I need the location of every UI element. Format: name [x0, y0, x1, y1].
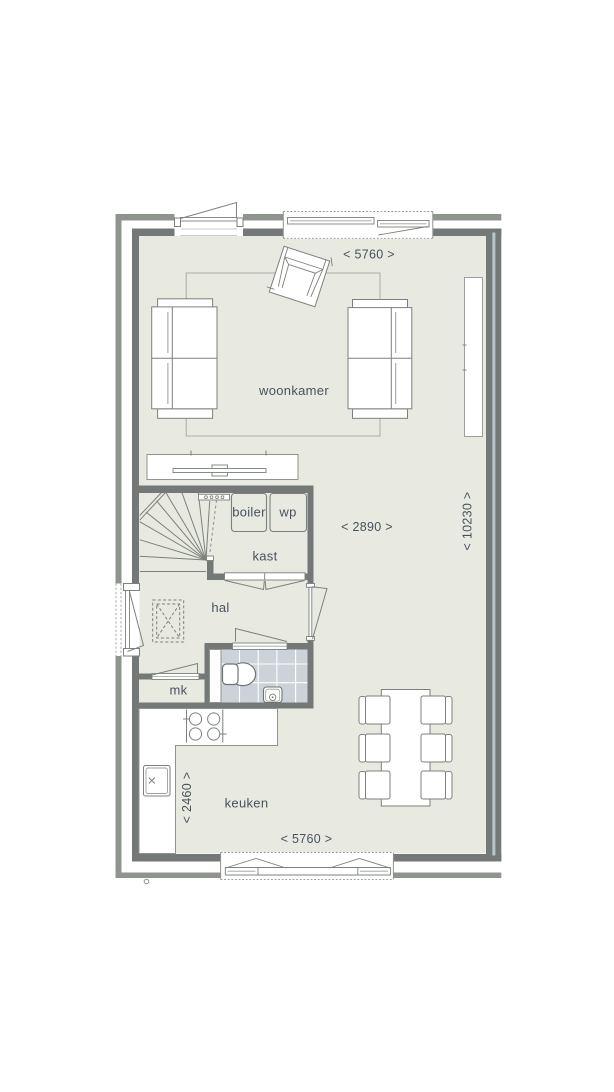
svg-text:< 5760 >: < 5760 >	[281, 832, 333, 846]
svg-text:boiler: boiler	[232, 505, 266, 520]
svg-text:< 5760 >: < 5760 >	[343, 248, 395, 262]
svg-text:< 2890 >: < 2890 >	[341, 520, 393, 534]
svg-text:< 10230 >: < 10230 >	[460, 491, 474, 550]
svg-text:keuken: keuken	[225, 796, 269, 811]
svg-text:mk: mk	[170, 683, 188, 698]
svg-text:hal: hal	[211, 600, 229, 615]
svg-text:kast: kast	[252, 549, 277, 564]
svg-text:wp: wp	[278, 505, 296, 520]
svg-text:woonkamer: woonkamer	[258, 383, 329, 398]
svg-text:< 2460 >: < 2460 >	[180, 772, 194, 824]
